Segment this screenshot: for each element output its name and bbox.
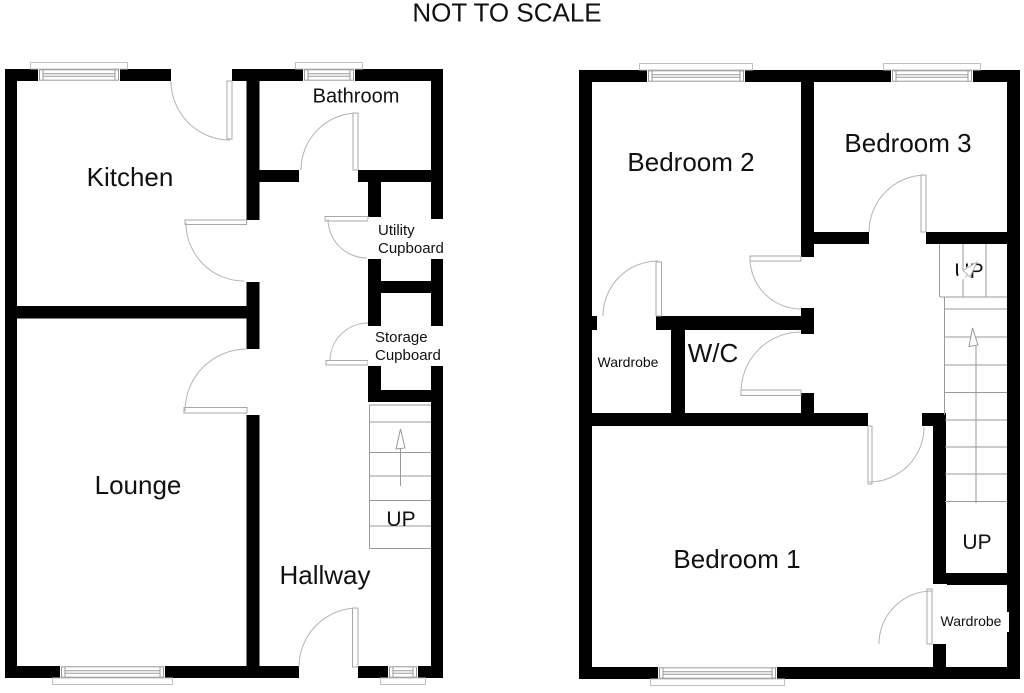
- svg-text:NOT TO SCALE: NOT TO SCALE: [412, 0, 601, 28]
- svg-text:Wardrobe: Wardrobe: [598, 354, 659, 370]
- svg-text:Bathroom: Bathroom: [313, 86, 400, 108]
- svg-text:Cupboard: Cupboard: [378, 240, 444, 257]
- svg-text:Storage: Storage: [375, 329, 428, 346]
- svg-text:Kitchen: Kitchen: [87, 162, 174, 192]
- svg-text:Bedroom 2: Bedroom 2: [627, 147, 754, 177]
- svg-text:W/C: W/C: [688, 338, 739, 368]
- svg-text:Lounge: Lounge: [95, 470, 182, 500]
- svg-text:Bedroom 3: Bedroom 3: [844, 128, 971, 158]
- svg-text:Hallway: Hallway: [279, 560, 370, 590]
- svg-text:UP: UP: [386, 508, 415, 531]
- svg-text:Cupboard: Cupboard: [375, 347, 441, 364]
- svg-text:UP: UP: [962, 531, 991, 554]
- svg-text:Bedroom 1: Bedroom 1: [673, 544, 800, 574]
- svg-text:Utility: Utility: [378, 222, 415, 239]
- svg-text:Wardrobe: Wardrobe: [941, 613, 1002, 629]
